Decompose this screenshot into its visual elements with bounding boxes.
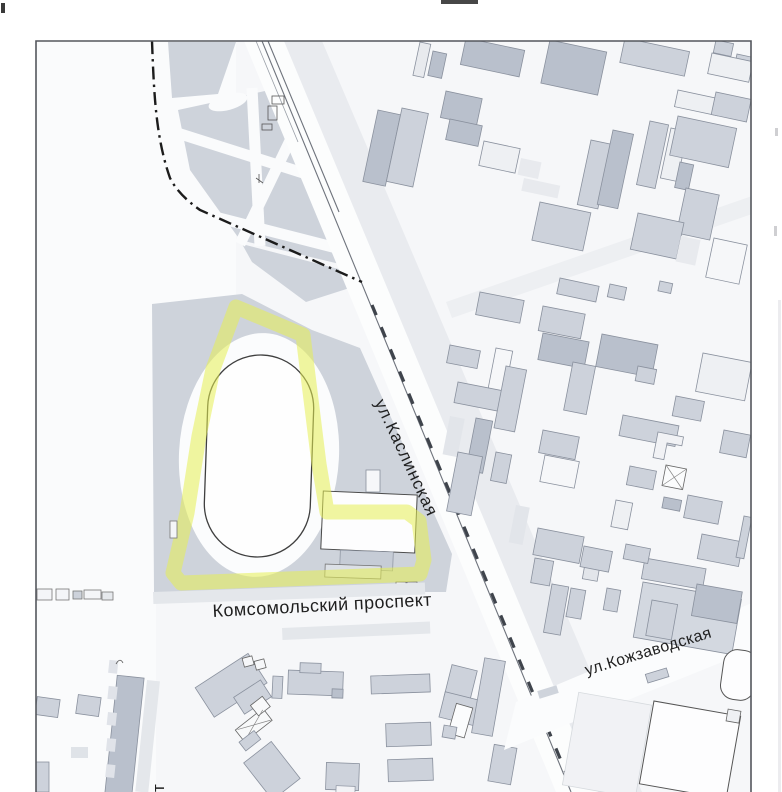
parcel-building-outline: [321, 491, 417, 553]
street-label-vertical-fragment: т: [149, 784, 169, 792]
city-plan-map: [0, 0, 782, 792]
running-track-oval: [203, 353, 316, 559]
scanned-map-page: { "map": { "street_labels": { "kaslinska…: [0, 0, 782, 792]
